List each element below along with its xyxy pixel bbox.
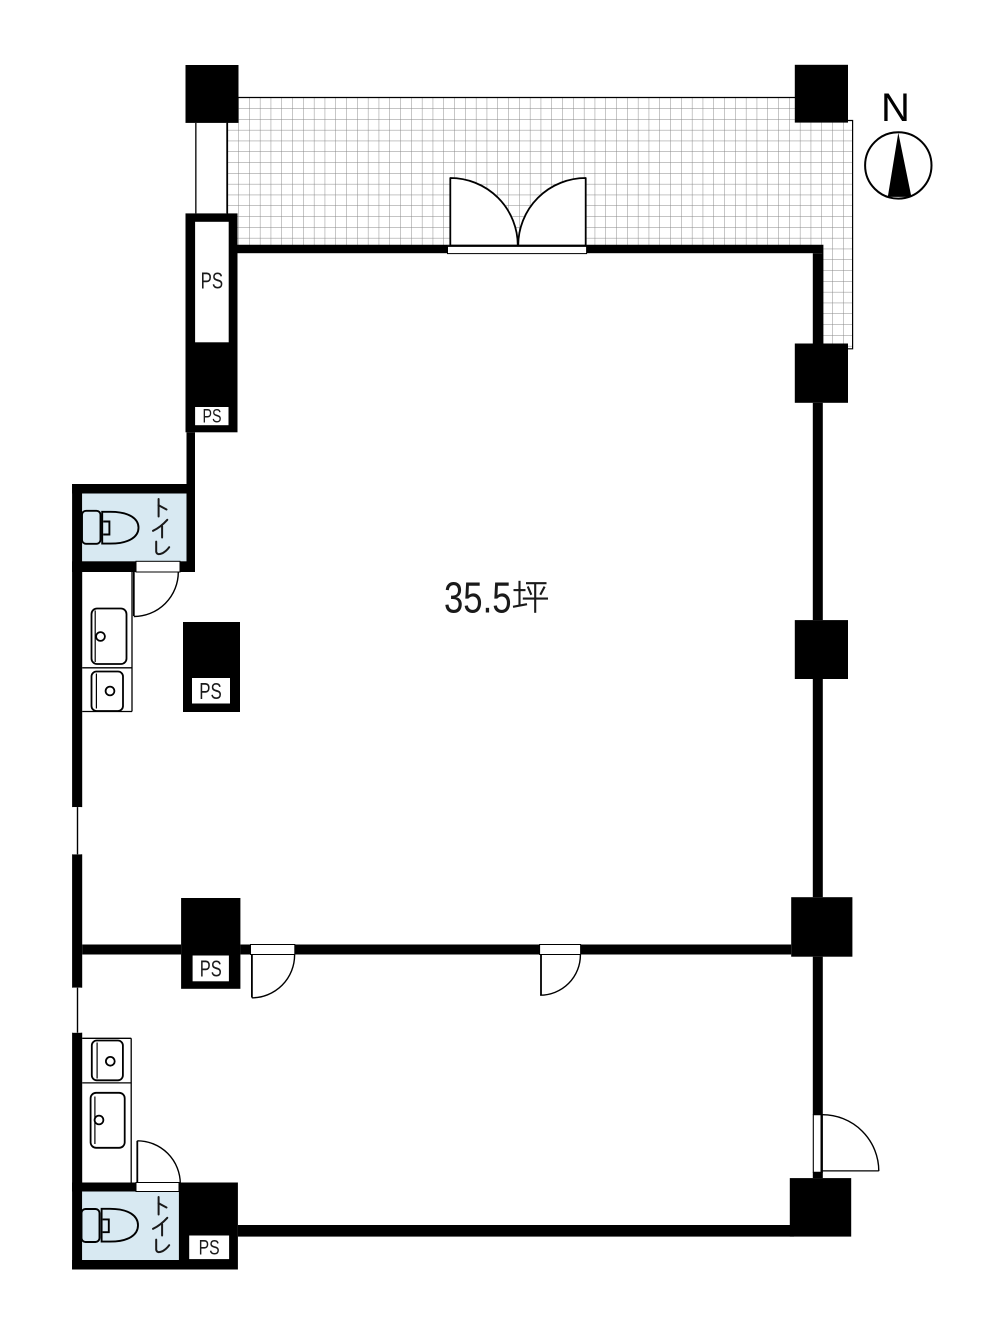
- svg-text:PS: PS: [200, 956, 222, 982]
- svg-text:35.5: 35.5: [444, 574, 512, 623]
- svg-text:PS: PS: [201, 267, 224, 293]
- svg-text:PS: PS: [199, 1237, 220, 1260]
- svg-text:PS: PS: [199, 678, 222, 704]
- svg-text:N: N: [881, 86, 910, 130]
- svg-text:PS: PS: [203, 406, 222, 427]
